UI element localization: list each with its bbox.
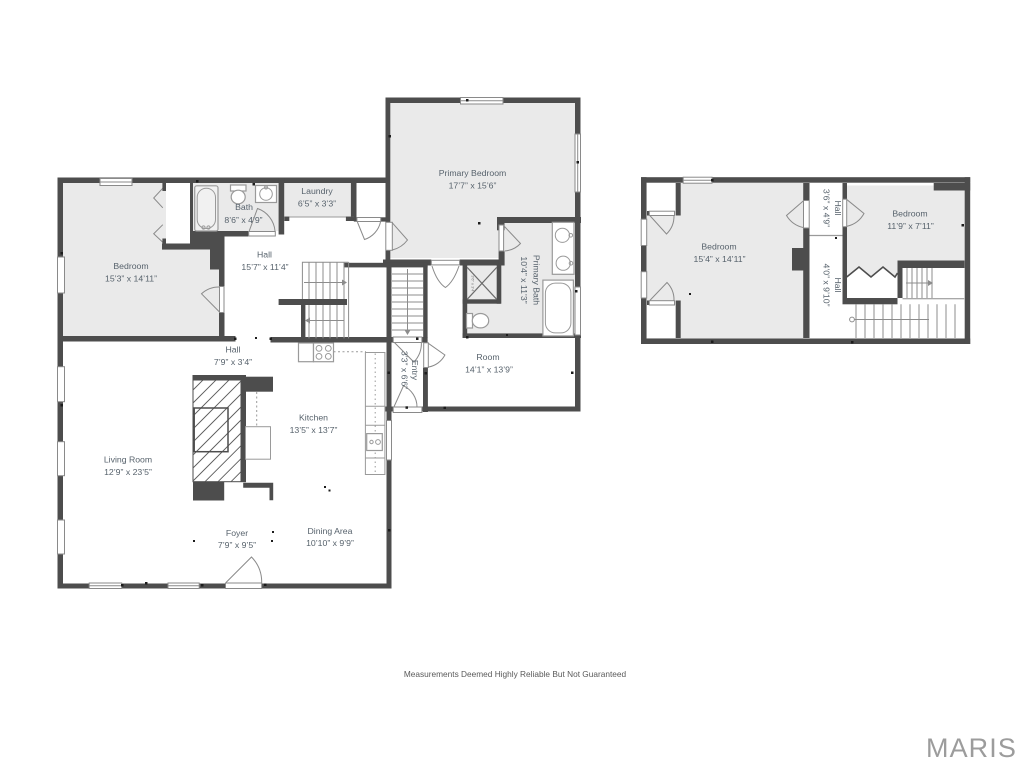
svg-text:17’7” x 15’6”: 17’7” x 15’6” xyxy=(449,181,497,191)
svg-text:15’3” x 14’11”: 15’3” x 14’11” xyxy=(105,274,157,284)
svg-text:Foyer: Foyer xyxy=(226,528,248,538)
svg-text:Primary Bath: Primary Bath xyxy=(532,255,542,305)
svg-text:11’9” x 7’11”: 11’9” x 7’11” xyxy=(887,221,934,231)
svg-text:3'6" x 3'4": 3'6" x 3'4" xyxy=(471,275,476,293)
svg-text:Primary Bedroom: Primary Bedroom xyxy=(439,168,507,178)
svg-text:Measurements Deemed Highly Rel: Measurements Deemed Highly Reliable But … xyxy=(404,669,627,679)
svg-text:Bedroom: Bedroom xyxy=(113,261,148,271)
svg-text:Laundry: Laundry xyxy=(301,186,333,196)
svg-text:4’0” x 9’10”: 4’0” x 9’10” xyxy=(822,264,832,307)
svg-text:Hall: Hall xyxy=(226,345,241,355)
svg-text:Hall: Hall xyxy=(833,201,843,216)
svg-text:7’9” x 9’5”: 7’9” x 9’5” xyxy=(218,540,256,550)
svg-text:Room: Room xyxy=(476,352,499,362)
svg-text:14’1” x 13’9”: 14’1” x 13’9” xyxy=(465,365,513,375)
svg-text:15’4” x 14’11”: 15’4” x 14’11” xyxy=(694,254,746,264)
svg-text:15’7” x 11’4”: 15’7” x 11’4” xyxy=(241,262,288,272)
svg-text:6’5” x 3’3”: 6’5” x 3’3” xyxy=(298,199,336,209)
svg-text:13’5” x 13’7”: 13’5” x 13’7” xyxy=(290,425,338,435)
svg-text:10’4” x 11’3”: 10’4” x 11’3” xyxy=(519,256,529,303)
svg-text:Hall: Hall xyxy=(833,278,843,293)
svg-text:Dining Area: Dining Area xyxy=(308,526,353,536)
svg-text:Kitchen: Kitchen xyxy=(299,413,328,423)
svg-text:Bedroom: Bedroom xyxy=(701,242,736,252)
svg-text:8’6” x 4’9”: 8’6” x 4’9” xyxy=(224,215,262,225)
svg-text:MARIS: MARIS xyxy=(926,733,1017,763)
svg-text:12’9” x 23’5”: 12’9” x 23’5” xyxy=(104,467,152,477)
svg-text:Living Room: Living Room xyxy=(104,455,152,465)
svg-text:Entry: Entry xyxy=(410,360,420,381)
svg-text:Bath: Bath xyxy=(235,202,253,212)
svg-text:3’6” x 4’9”: 3’6” x 4’9” xyxy=(822,189,832,227)
svg-text:Hall: Hall xyxy=(257,250,272,260)
svg-text:10’10” x 9’9”: 10’10” x 9’9” xyxy=(306,538,354,548)
svg-text:3’3” x 6’6”: 3’3” x 6’6” xyxy=(400,351,410,389)
svg-text:Bedroom: Bedroom xyxy=(892,209,927,219)
svg-text:7’9” x 3’4”: 7’9” x 3’4” xyxy=(214,357,252,367)
